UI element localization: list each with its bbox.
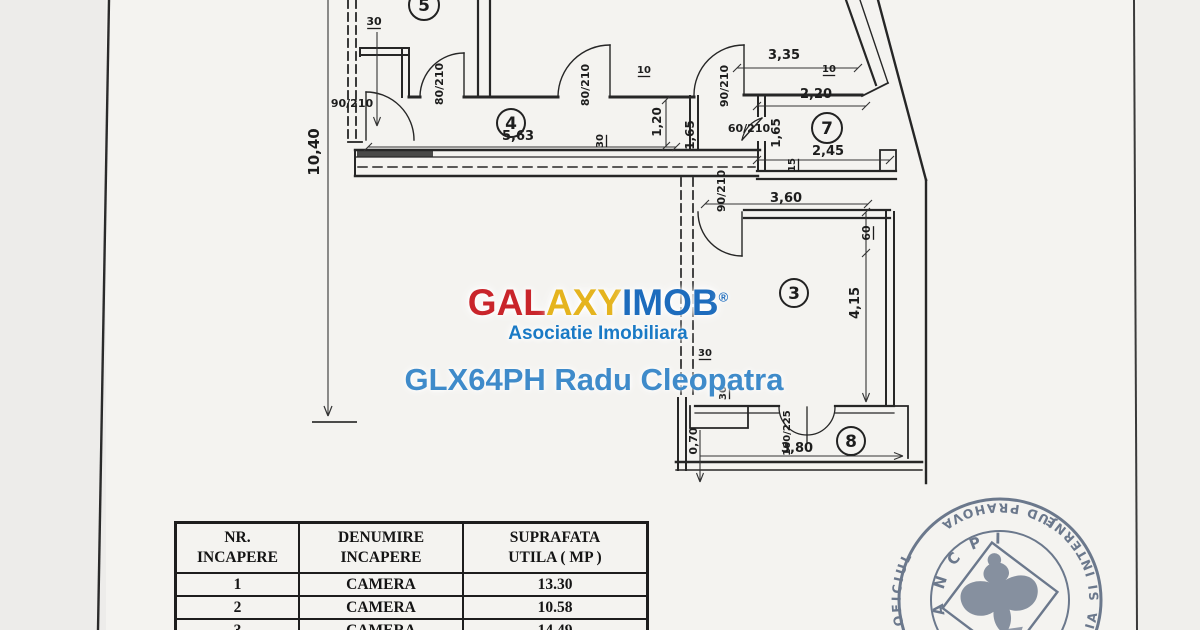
table-cell: 13.30 [463,573,648,596]
round-official-stamp: JUD PRAHOVA OFICIUL SI INTERNELOR IMOBIL… [875,486,1114,630]
logo-subtitle: Asociatie Imobiliara [398,323,798,345]
coat-of-arms-eagle-icon [955,548,1044,630]
table-cell: CAMERA [299,596,463,619]
logo-wordmark: GALAXYIMOB® [398,284,798,321]
dimension-label: 90/210 [718,65,731,108]
dimension-label: 80/210 [579,64,592,107]
dimension-label: 1,20 [650,107,664,137]
table-cell: 14.49 [463,619,648,630]
table-row: 3CAMERA14.49 [176,619,648,630]
dimension-label: 30 [595,134,606,148]
scan-left-margin [0,0,106,630]
table-cell: CAMERA [299,573,463,596]
dimension-label: 3,35 [768,48,800,63]
dimension-label: 60/210 [728,122,771,135]
room-number: 8 [845,432,857,452]
dimension-label: 30 [698,348,712,359]
table-header-cell: SUPRAFATAUTILA ( MP ) [463,523,648,574]
logo-segment: GAL [468,282,546,323]
agent-reference-text: GLX64PH Radu Cleopatra [344,362,844,398]
dimension-label: 10,40 [305,128,323,175]
dimension-label: 90/210 [331,97,374,110]
table-header: NR.INCAPEREDENUMIREINCAPERESUPRAFATAUTIL… [176,523,648,574]
dimension-label: 2,45 [812,144,844,159]
dimension-label: 2,20 [800,87,832,102]
page-edge-right [1134,0,1137,630]
room-area-table: NR.INCAPEREDENUMIREINCAPERESUPRAFATAUTIL… [174,521,649,630]
dimension-label: 10 [637,65,651,76]
table-header-cell: NR.INCAPERE [176,523,300,574]
dimension-label: 30 [366,15,382,28]
dimension-label: 15 [787,158,798,172]
dimension-label: 4,15 [848,287,863,319]
table-row: 1CAMERA13.30 [176,573,648,596]
galaxyimob-logo: GALAXYIMOB® Asociatie Imobiliara [398,284,798,345]
table-cell: 1 [176,573,300,596]
logo-segment: AXY [546,282,622,323]
room-number: 7 [821,119,833,139]
dimension-label: 3,60 [770,191,802,206]
dimension-label: 1,65 [683,120,697,150]
table-cell: 10.58 [463,596,648,619]
room-number: 4 [505,114,517,134]
table-row: 2CAMERA10.58 [176,596,648,619]
svg-text:OFICIUL: OFICIUL [881,547,925,627]
table-header-cell: DENUMIREINCAPERE [299,523,463,574]
table-cell: 3 [176,619,300,630]
dimension-label: 80/210 [433,63,446,106]
dimension-label: 1,65 [769,118,783,148]
logo-segment: IMOB [622,282,719,323]
dimension-label: 10 [822,64,836,75]
table-cell: CAMERA [299,619,463,630]
dimension-label: 60 [860,225,873,241]
stamp-ring-fragment: OFICIUL [881,547,925,627]
scanned-floorplan-page: 10,403090/21080/21080/2101090/2103,35102… [0,0,1200,630]
room-number: 5 [418,0,430,16]
registered-trademark-icon: ® [719,290,729,305]
table-cell: 2 [176,596,300,619]
dimension-label: 0,70 [687,427,700,454]
scan-right-margin [1137,0,1200,630]
dimension-label: 90/210 [715,170,728,213]
dimension-lines [312,0,903,482]
dimension-label: 3,80 [781,441,813,456]
